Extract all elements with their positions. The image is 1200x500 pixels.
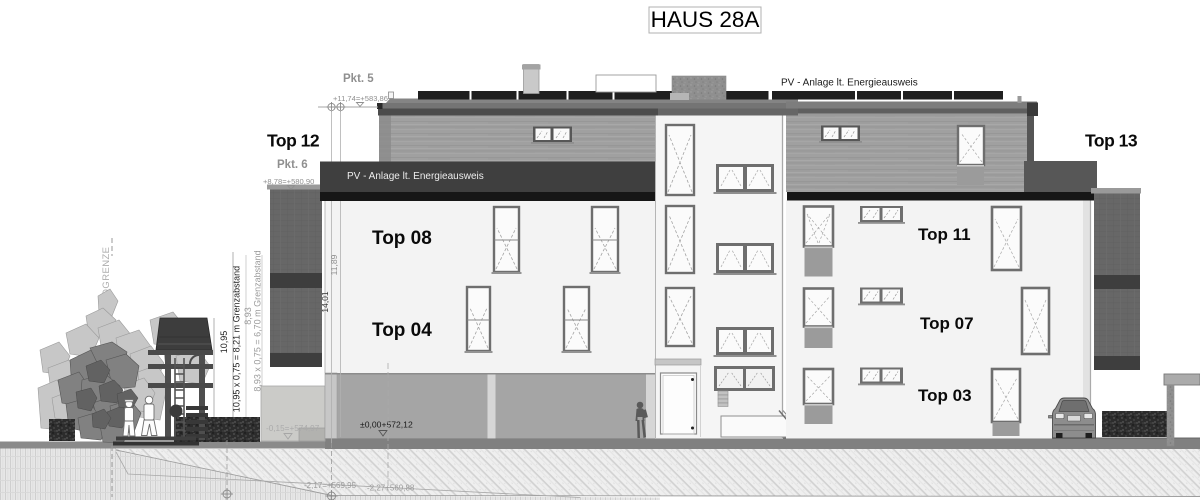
svg-text:Pkt. 5: Pkt. 5 bbox=[343, 73, 374, 85]
svg-text:-2,27+569,88: -2,27+569,88 bbox=[367, 484, 415, 493]
svg-text:Top 07: Top 07 bbox=[920, 314, 974, 333]
svg-text:Top 12: Top 12 bbox=[267, 131, 320, 151]
svg-text:+11,74=+583,86: +11,74=+583,86 bbox=[333, 94, 388, 103]
svg-text:-2,17=+569,95: -2,17=+569,95 bbox=[304, 481, 357, 490]
svg-text:Top 13: Top 13 bbox=[1085, 131, 1138, 151]
svg-text:PV - Anlage lt. Energieausweis: PV - Anlage lt. Energieausweis bbox=[347, 171, 484, 182]
svg-text:Top 03: Top 03 bbox=[918, 386, 972, 405]
svg-text:Top 04: Top 04 bbox=[372, 320, 432, 341]
svg-text:Top 11: Top 11 bbox=[918, 225, 971, 244]
svg-text:-0,15=+574,97: -0,15=+574,97 bbox=[266, 424, 320, 433]
svg-text:PV - Anlage lt. Energieausweis: PV - Anlage lt. Energieausweis bbox=[781, 78, 918, 89]
svg-text:+8,78=+580,90: +8,78=+580,90 bbox=[263, 177, 314, 186]
svg-text:±0,00+572,12: ±0,00+572,12 bbox=[360, 420, 413, 430]
svg-text:10,95 x 0,75 = 8,21 m Grenzabs: 10,95 x 0,75 = 8,21 m Grenzabstand bbox=[232, 266, 242, 412]
svg-text:Top 08: Top 08 bbox=[372, 228, 432, 249]
svg-text:HAUS 28A: HAUS 28A bbox=[651, 7, 760, 32]
svg-text:8,93 x 0,75 = 6,70 m Grenzabst: 8,93 x 0,75 = 6,70 m Grenzabstand bbox=[253, 250, 263, 391]
svg-text:8,93: 8,93 bbox=[243, 307, 253, 325]
svg-text:10,95: 10,95 bbox=[219, 331, 229, 354]
svg-text:14,01: 14,01 bbox=[320, 291, 330, 313]
svg-text:11,89: 11,89 bbox=[329, 254, 339, 275]
svg-text:Pkt. 6: Pkt. 6 bbox=[277, 159, 308, 171]
